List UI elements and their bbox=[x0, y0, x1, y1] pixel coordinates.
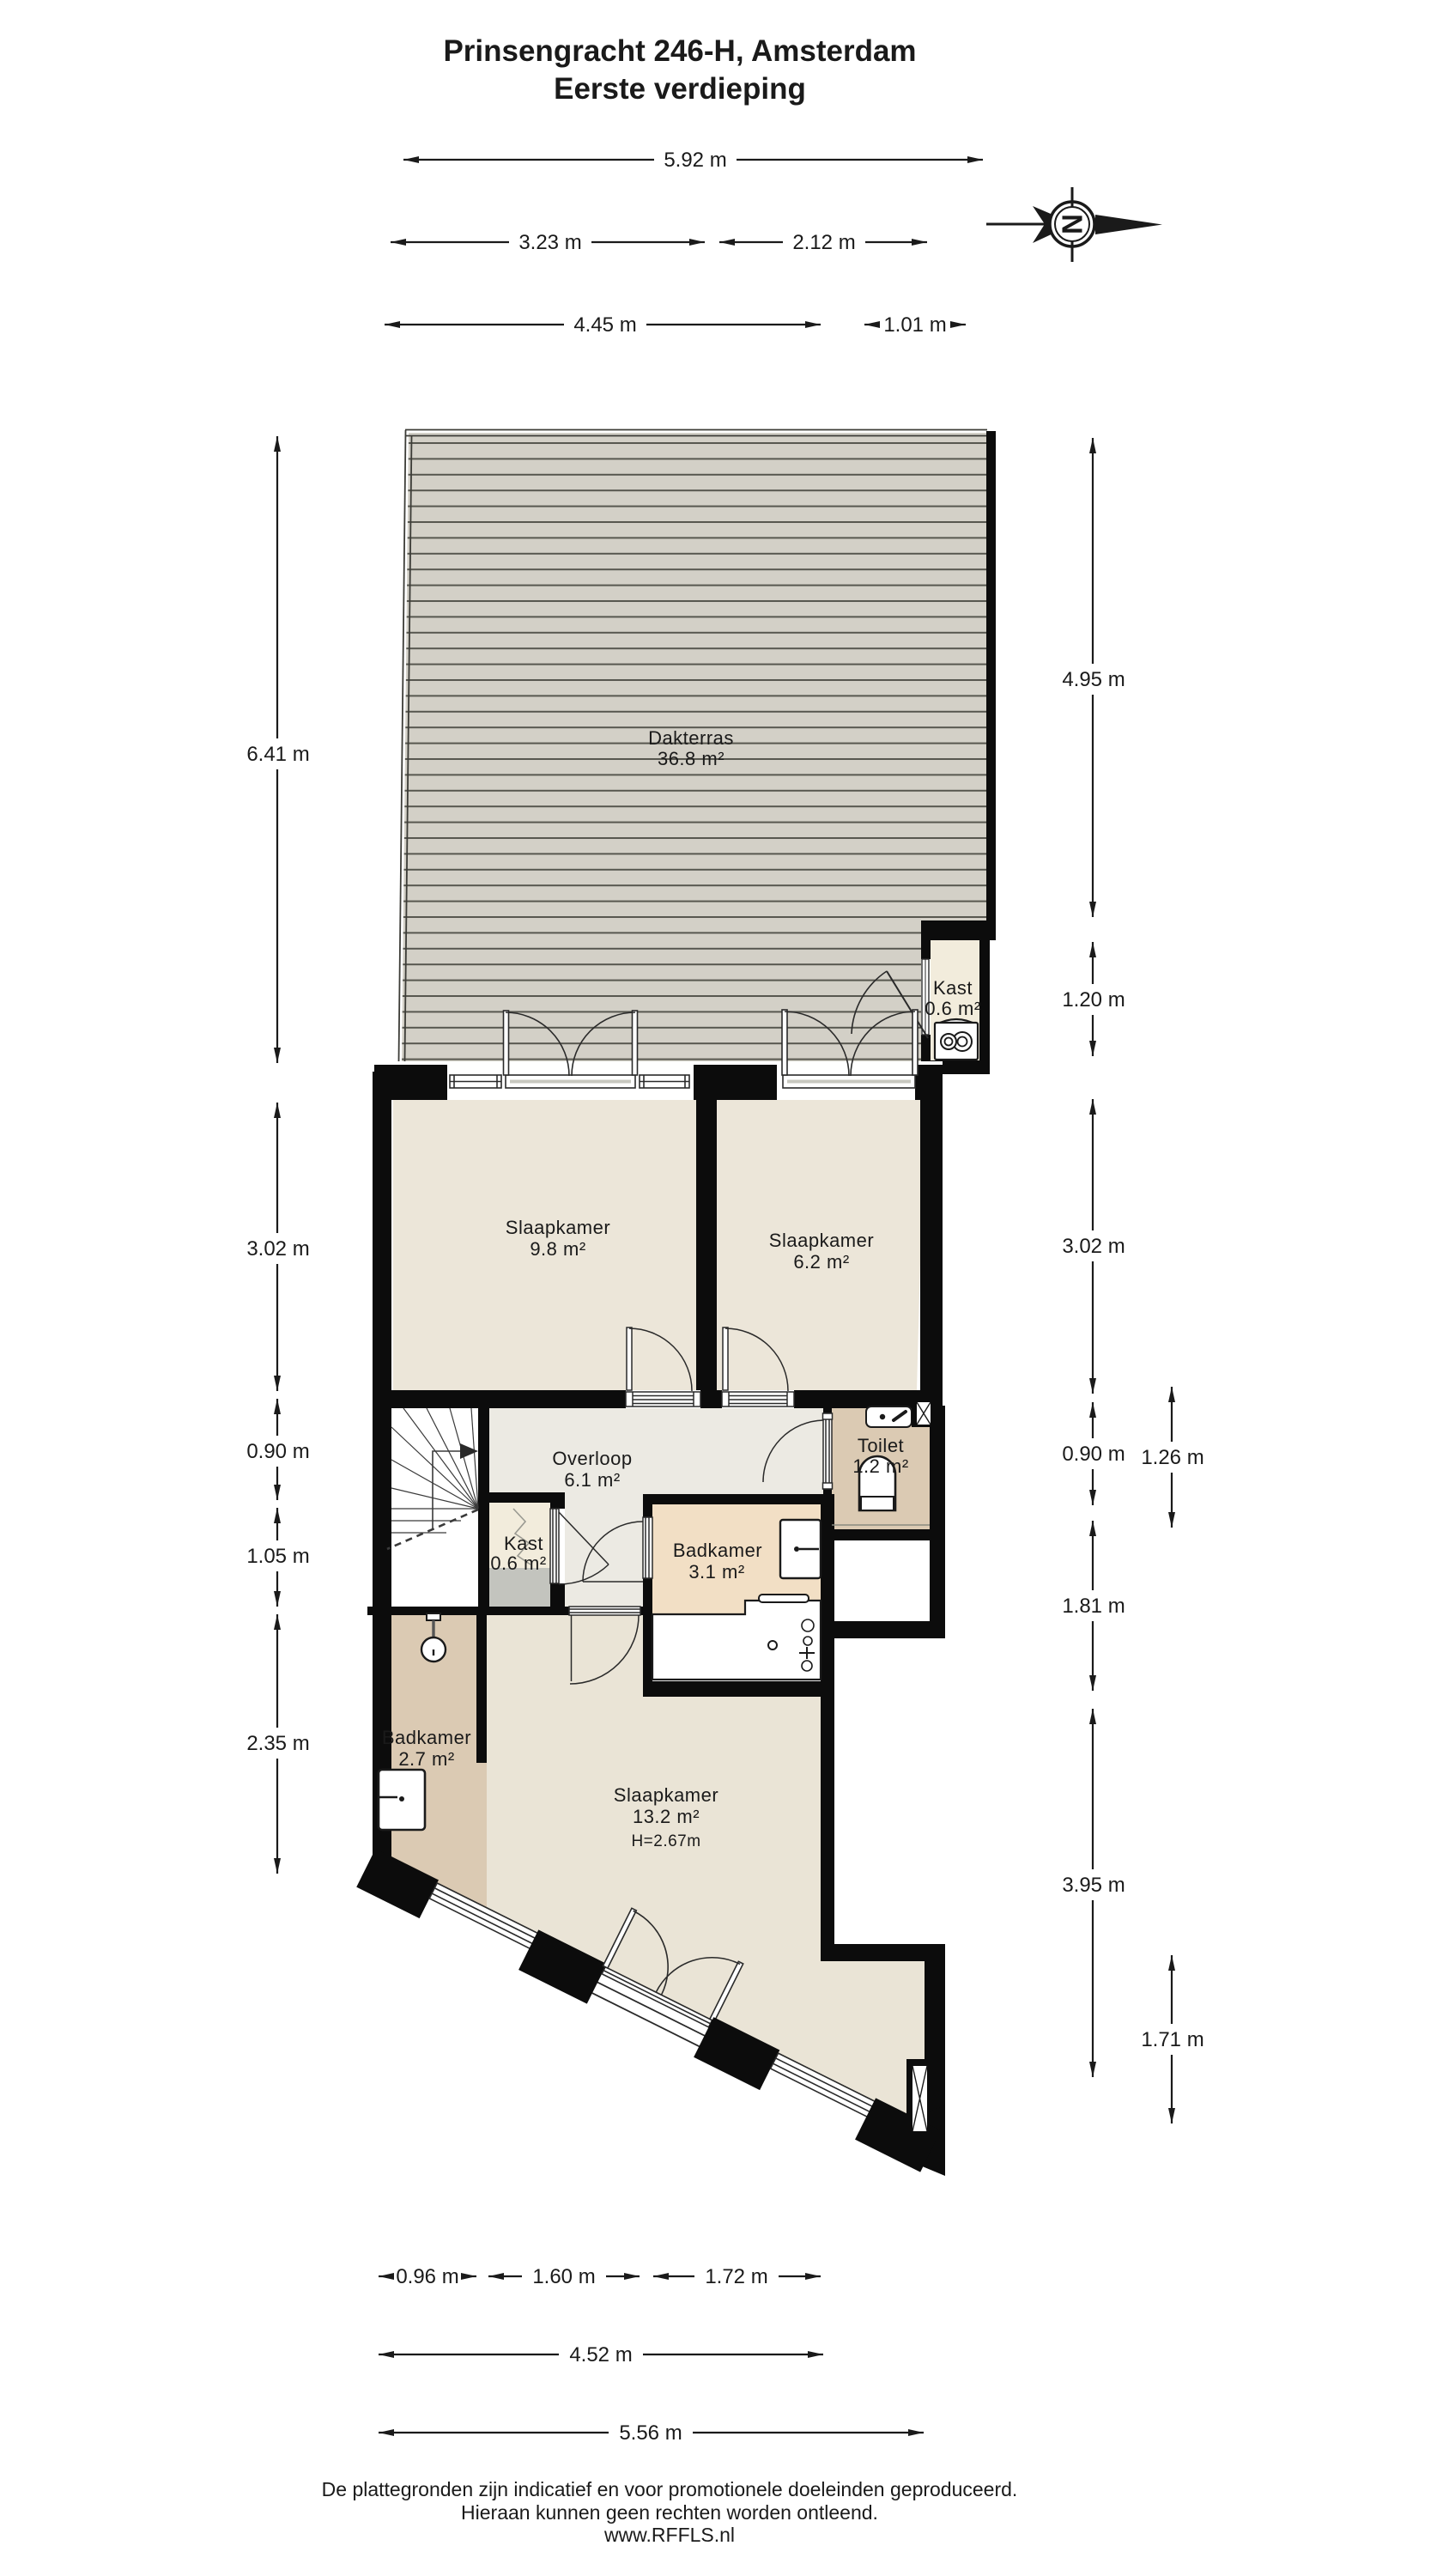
svg-text:Toilet: Toilet bbox=[858, 1435, 904, 1456]
svg-text:0.90 m: 0.90 m bbox=[1062, 1443, 1125, 1466]
svg-text:Kast: Kast bbox=[933, 977, 973, 999]
svg-text:0.6 m²: 0.6 m² bbox=[925, 998, 980, 1019]
svg-text:N: N bbox=[1057, 214, 1088, 234]
svg-text:3.23 m: 3.23 m bbox=[518, 231, 581, 254]
svg-text:9.8 m²: 9.8 m² bbox=[530, 1238, 585, 1260]
svg-text:Slaapkamer: Slaapkamer bbox=[506, 1217, 610, 1238]
svg-text:0.6 m²: 0.6 m² bbox=[490, 1552, 546, 1574]
svg-text:3.95 m: 3.95 m bbox=[1062, 1874, 1125, 1897]
svg-text:Hieraan kunnen geen rechten wo: Hieraan kunnen geen rechten worden ontle… bbox=[461, 2501, 878, 2524]
svg-text:6.2 m²: 6.2 m² bbox=[793, 1251, 849, 1273]
svg-text:1.71 m: 1.71 m bbox=[1141, 2028, 1203, 2051]
svg-text:1.2 m²: 1.2 m² bbox=[852, 1455, 908, 1477]
svg-text:36.8 m²: 36.8 m² bbox=[658, 748, 724, 769]
svg-text:1.81 m: 1.81 m bbox=[1062, 1595, 1125, 1618]
svg-text:4.52 m: 4.52 m bbox=[569, 2343, 632, 2366]
svg-text:13.2 m²: 13.2 m² bbox=[633, 1806, 700, 1827]
svg-text:5.92 m: 5.92 m bbox=[664, 149, 726, 172]
svg-text:1.20 m: 1.20 m bbox=[1062, 988, 1125, 1012]
svg-text:4.95 m: 4.95 m bbox=[1062, 668, 1125, 691]
svg-text:0.90 m: 0.90 m bbox=[246, 1440, 309, 1463]
svg-text:Slaapkamer: Slaapkamer bbox=[769, 1230, 874, 1251]
svg-text:6.1 m²: 6.1 m² bbox=[564, 1469, 620, 1491]
svg-text:6.41 m: 6.41 m bbox=[246, 743, 309, 766]
svg-text:1.26 m: 1.26 m bbox=[1141, 1446, 1203, 1469]
svg-text:Prinsengracht 246-H, Amsterdam: Prinsengracht 246-H, Amsterdam bbox=[443, 34, 916, 68]
svg-text:2.35 m: 2.35 m bbox=[246, 1732, 309, 1755]
svg-text:Badkamer: Badkamer bbox=[382, 1727, 471, 1748]
svg-text:3.02 m: 3.02 m bbox=[246, 1237, 309, 1261]
svg-text:3.02 m: 3.02 m bbox=[1062, 1235, 1125, 1258]
svg-text:Kast: Kast bbox=[504, 1533, 543, 1554]
svg-text:5.56 m: 5.56 m bbox=[619, 2421, 682, 2445]
svg-text:De plattegronden zijn indicati: De plattegronden zijn indicatief en voor… bbox=[322, 2478, 1018, 2500]
svg-text:4.45 m: 4.45 m bbox=[573, 313, 636, 337]
svg-text:Eerste verdieping: Eerste verdieping bbox=[554, 72, 806, 106]
svg-text:1.72 m: 1.72 m bbox=[705, 2265, 767, 2288]
svg-text:1.01 m: 1.01 m bbox=[883, 313, 946, 337]
svg-text:H=2.67m: H=2.67m bbox=[631, 1832, 700, 1850]
svg-text:3.1 m²: 3.1 m² bbox=[688, 1561, 744, 1583]
svg-text:1.05 m: 1.05 m bbox=[246, 1545, 309, 1568]
svg-text:2.12 m: 2.12 m bbox=[792, 231, 855, 254]
svg-text:Overloop: Overloop bbox=[552, 1448, 632, 1469]
svg-text:Slaapkamer: Slaapkamer bbox=[614, 1784, 718, 1806]
svg-text:www.RFFLS.nl: www.RFFLS.nl bbox=[603, 2524, 735, 2546]
svg-text:Badkamer: Badkamer bbox=[673, 1540, 762, 1561]
svg-text:1.60 m: 1.60 m bbox=[532, 2265, 595, 2288]
svg-text:2.7 m²: 2.7 m² bbox=[398, 1748, 454, 1770]
svg-text:Dakterras: Dakterras bbox=[648, 727, 734, 749]
svg-text:0.96 m: 0.96 m bbox=[396, 2265, 458, 2288]
